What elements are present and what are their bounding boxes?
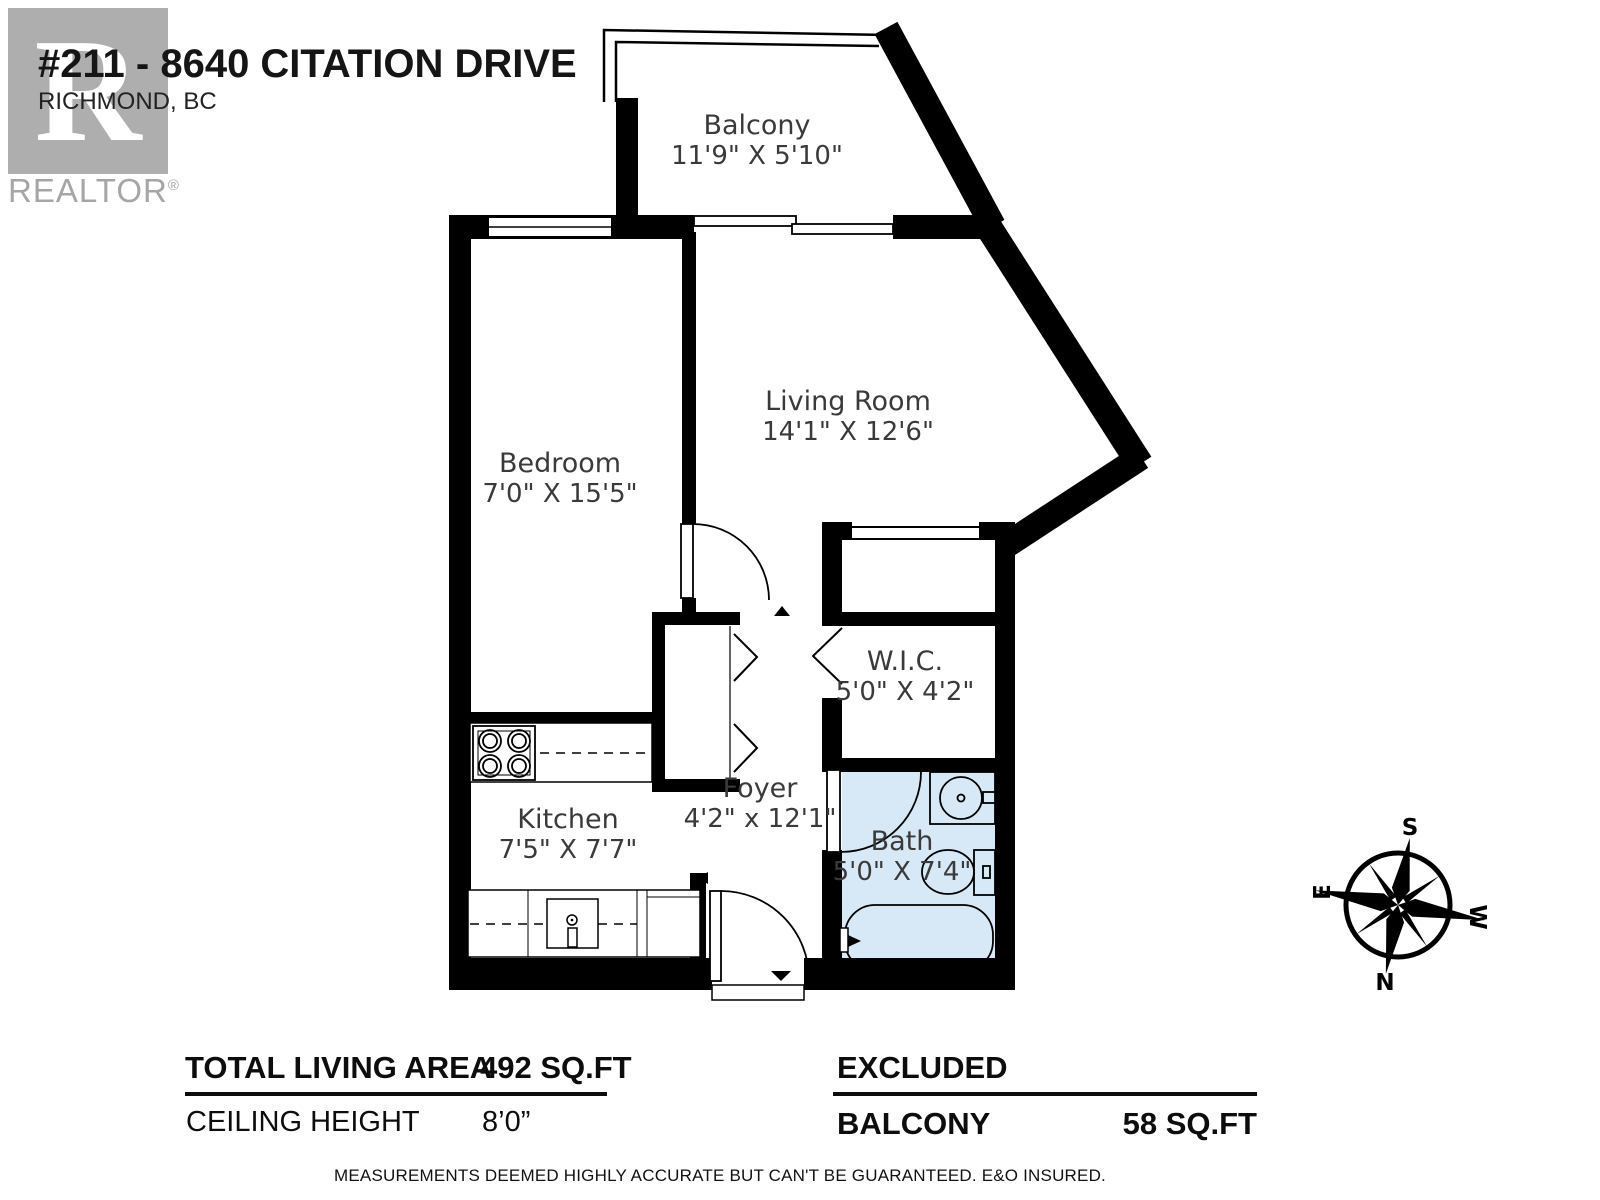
foyer-marker-icon [774, 606, 790, 616]
compass-south-label: S [1402, 815, 1419, 841]
compass-rose: S N E W [1303, 815, 1496, 996]
diagonal-walls [886, 28, 1141, 546]
total-living-area-label: TOTAL LIVING AREA [185, 1050, 492, 1086]
room-label-foyer: Foyer 4'2" x 12'1" [660, 773, 860, 834]
room-label-kitchen: Kitchen 7'5" X 7'7" [468, 804, 668, 865]
ceiling-height-value: 8’0” [482, 1106, 530, 1139]
summary-divider-left [185, 1092, 607, 1096]
excluded-item-label: BALCONY [837, 1106, 990, 1142]
disclaimer-text: MEASUREMENTS DEEMED HIGHLY ACCURATE BUT … [0, 1166, 1440, 1186]
excluded-item-value: 58 SQ.FT [1090, 1106, 1257, 1142]
compass-north-label: N [1375, 970, 1394, 996]
compass-west-label: W [1464, 904, 1490, 929]
balcony-sliding-door [694, 216, 893, 234]
excluded-label: EXCLUDED [837, 1050, 1008, 1086]
living-closet-opening [852, 527, 983, 539]
ceiling-height-label: CEILING HEIGHT [186, 1106, 420, 1139]
foyer-closet-bifold-doors [730, 626, 757, 779]
bedroom-door [681, 524, 769, 600]
total-living-area-value: 492 SQ.FT [480, 1050, 632, 1086]
room-label-balcony: Balcony 11'9" X 5'10" [657, 110, 857, 171]
room-label-living-room: Living Room 14'1" X 12'6" [723, 386, 973, 447]
room-label-bedroom: Bedroom 7'0" X 15'5" [460, 448, 660, 509]
summary-divider-right [833, 1092, 1257, 1096]
floor-plan-drawing: S N E W [0, 0, 1600, 1200]
floor-plan-page: R REALTOR® #211 - 8640 CITATION DRIVE RI… [0, 0, 1600, 1200]
room-label-bath: Bath 5'0" X 7'4" [802, 826, 1002, 887]
balcony-railing [604, 30, 888, 102]
room-label-wic: W.I.C. 5'0" X 4'2" [805, 646, 1005, 707]
compass-east-label: E [1310, 884, 1336, 900]
bedroom-window [488, 217, 612, 237]
